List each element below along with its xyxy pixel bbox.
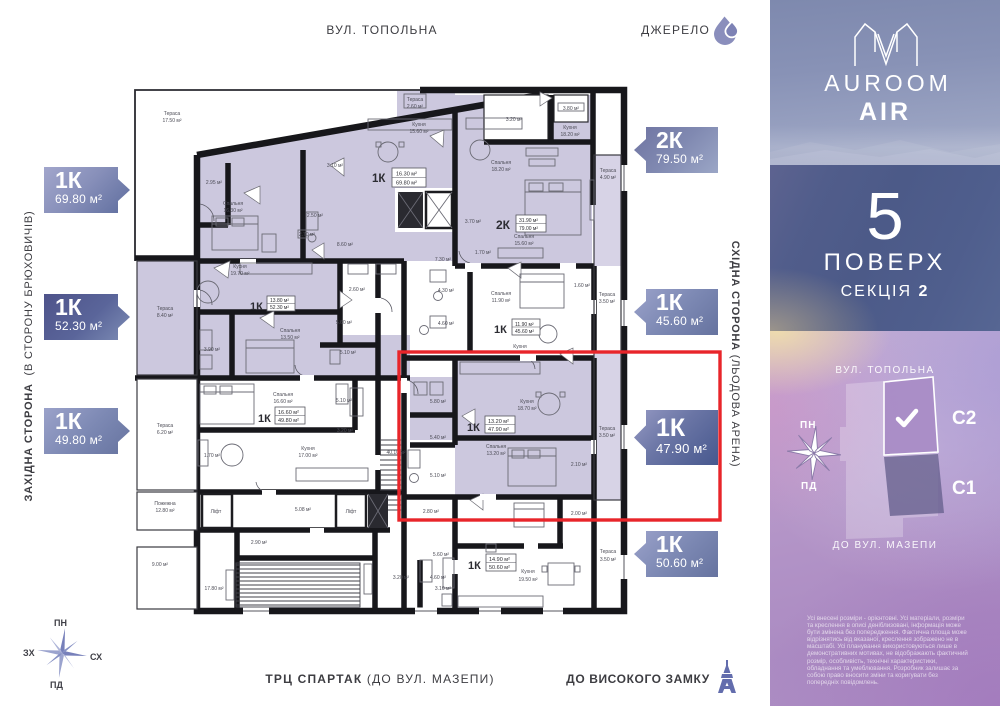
svg-text:19.70 м²: 19.70 м² [230, 271, 249, 277]
svg-text:Тераса: Тераса [599, 292, 616, 298]
svg-text:5.10 м²: 5.10 м² [340, 350, 357, 356]
svg-text:Кухня: Кухня [233, 264, 247, 270]
svg-text:Кухня: Кухня [412, 122, 426, 128]
svg-text:11.90 м²: 11.90 м² [515, 322, 534, 328]
svg-text:3.70 м²: 3.70 м² [465, 219, 482, 225]
svg-text:5.10 м²: 5.10 м² [430, 473, 447, 479]
svg-text:4.60 м²: 4.60 м² [430, 575, 447, 581]
svg-text:Пожежна: Пожежна [154, 501, 175, 507]
svg-text:5.08 м²: 5.08 м² [295, 507, 312, 513]
svg-text:1.70 м²: 1.70 м² [204, 453, 221, 459]
svg-text:1.60 м²: 1.60 м² [574, 283, 591, 289]
svg-text:19.50 м²: 19.50 м² [518, 577, 537, 583]
svg-text:Кухня: Кухня [520, 399, 534, 405]
svg-text:2.80 м²: 2.80 м² [423, 509, 440, 515]
svg-text:3.20 м²: 3.20 м² [506, 117, 523, 123]
svg-text:Кухня: Кухня [521, 569, 535, 575]
svg-text:13.20 м²: 13.20 м² [486, 451, 505, 457]
svg-text:1К: 1К [258, 413, 271, 425]
svg-text:Спальня: Спальня [273, 392, 293, 398]
svg-text:3.80 м²: 3.80 м² [563, 106, 580, 112]
svg-text:Спальня: Спальня [280, 328, 300, 334]
svg-text:Спальня: Спальня [491, 160, 511, 166]
svg-text:12.80 м²: 12.80 м² [155, 508, 174, 514]
svg-text:5.40 м²: 5.40 м² [430, 435, 447, 441]
svg-text:49.80 м²: 49.80 м² [278, 418, 299, 424]
svg-text:Тераса: Тераса [407, 97, 424, 103]
svg-text:3.50 м²: 3.50 м² [600, 557, 617, 563]
svg-text:5.60 м²: 5.60 м² [336, 320, 353, 326]
svg-text:6.20 м²: 6.20 м² [157, 430, 174, 436]
svg-text:2.90 м²: 2.90 м² [251, 540, 268, 546]
svg-text:3.10 м²: 3.10 м² [435, 586, 452, 592]
svg-text:5.60 м²: 5.60 м² [433, 552, 450, 558]
svg-text:9.00 м²: 9.00 м² [152, 562, 169, 568]
svg-text:2.60 м²: 2.60 м² [407, 104, 424, 110]
svg-text:18.20 м²: 18.20 м² [491, 167, 510, 173]
svg-text:1К: 1К [250, 301, 263, 313]
svg-text:1К: 1К [467, 422, 480, 434]
svg-text:7.30 м²: 7.30 м² [435, 257, 452, 263]
svg-text:8.60 м²: 8.60 м² [337, 242, 354, 248]
svg-text:Спальня: Спальня [491, 291, 511, 297]
svg-text:4.60 м²: 4.60 м² [438, 321, 455, 327]
svg-text:4.90 м²: 4.90 м² [600, 175, 617, 181]
svg-text:17.80 м²: 17.80 м² [204, 586, 223, 592]
svg-text:1К: 1К [372, 173, 386, 185]
svg-text:31.90 м²: 31.90 м² [519, 218, 538, 224]
svg-text:Кухня: Кухня [301, 446, 315, 452]
svg-text:5.10 м²: 5.10 м² [336, 398, 353, 404]
svg-text:3.20 м²: 3.20 м² [393, 575, 410, 581]
svg-text:13.50 м²: 13.50 м² [280, 335, 299, 341]
svg-text:2.60 м²: 2.60 м² [349, 287, 366, 293]
svg-text:Ліфт: Ліфт [346, 509, 357, 515]
svg-text:69.80 м²: 69.80 м² [396, 181, 417, 187]
svg-text:17.50 м²: 17.50 м² [162, 118, 181, 124]
svg-text:40.10 м²: 40.10 м² [386, 450, 405, 456]
svg-text:3.20 м²: 3.20 м² [337, 428, 354, 434]
svg-text:50.60 м²: 50.60 м² [489, 565, 510, 571]
svg-text:14.90 м²: 14.90 м² [489, 557, 510, 563]
svg-text:15.60 м²: 15.60 м² [514, 241, 533, 247]
svg-text:5.80 м²: 5.80 м² [430, 399, 447, 405]
svg-text:2.50 м²: 2.50 м² [307, 213, 324, 219]
svg-text:Кухня: Кухня [563, 125, 577, 131]
svg-text:2.95 м²: 2.95 м² [206, 180, 223, 186]
svg-text:16.30 м²: 16.30 м² [396, 172, 417, 178]
svg-text:8.40 м²: 8.40 м² [157, 313, 174, 319]
svg-text:1К: 1К [468, 560, 481, 572]
svg-text:47.90 м²: 47.90 м² [488, 427, 509, 433]
svg-text:3.50 м²: 3.50 м² [599, 433, 616, 439]
svg-text:16.60 м²: 16.60 м² [278, 410, 299, 416]
svg-text:52.30 м²: 52.30 м² [270, 305, 289, 311]
svg-text:11.90 м²: 11.90 м² [492, 298, 511, 304]
svg-text:2.70 м²: 2.70 м² [299, 232, 316, 238]
svg-text:17.00 м²: 17.00 м² [298, 453, 317, 459]
svg-text:Ліфт: Ліфт [211, 509, 222, 515]
svg-text:1К: 1К [494, 324, 507, 336]
svg-text:Тераса: Тераса [600, 549, 617, 555]
svg-text:2.00 м²: 2.00 м² [571, 511, 588, 517]
svg-text:3.10 м²: 3.10 м² [327, 163, 344, 169]
svg-text:13.20 м²: 13.20 м² [488, 419, 509, 425]
svg-text:Кухня: Кухня [513, 344, 527, 350]
svg-text:Тераса: Тераса [164, 111, 181, 117]
svg-text:Тераса: Тераса [599, 426, 616, 432]
svg-text:4.30 м²: 4.30 м² [438, 288, 455, 294]
svg-text:15.60 м²: 15.60 м² [409, 129, 428, 135]
svg-text:16.60 м²: 16.60 м² [273, 399, 292, 405]
svg-text:Спальня: Спальня [486, 444, 506, 450]
svg-text:Тераса: Тераса [157, 423, 174, 429]
svg-text:Тераса: Тераса [600, 168, 617, 174]
svg-text:Спальня: Спальня [514, 234, 534, 240]
svg-text:Спальня: Спальня [223, 201, 243, 207]
svg-text:1.70 м²: 1.70 м² [475, 250, 492, 256]
svg-text:13.80 м²: 13.80 м² [270, 298, 289, 304]
svg-text:16.30 м²: 16.30 м² [223, 208, 242, 214]
svg-text:18.70 м²: 18.70 м² [517, 406, 536, 412]
svg-text:3.50 м²: 3.50 м² [599, 299, 616, 305]
svg-text:2К: 2К [496, 218, 511, 232]
svg-text:3.90 м²: 3.90 м² [204, 347, 221, 353]
svg-text:45.60 м²: 45.60 м² [515, 329, 534, 335]
svg-text:2.10 м²: 2.10 м² [571, 462, 588, 468]
svg-text:Тераса: Тераса [157, 306, 174, 312]
svg-text:18.20 м²: 18.20 м² [560, 132, 579, 138]
svg-text:79.00 м²: 79.00 м² [519, 226, 538, 232]
